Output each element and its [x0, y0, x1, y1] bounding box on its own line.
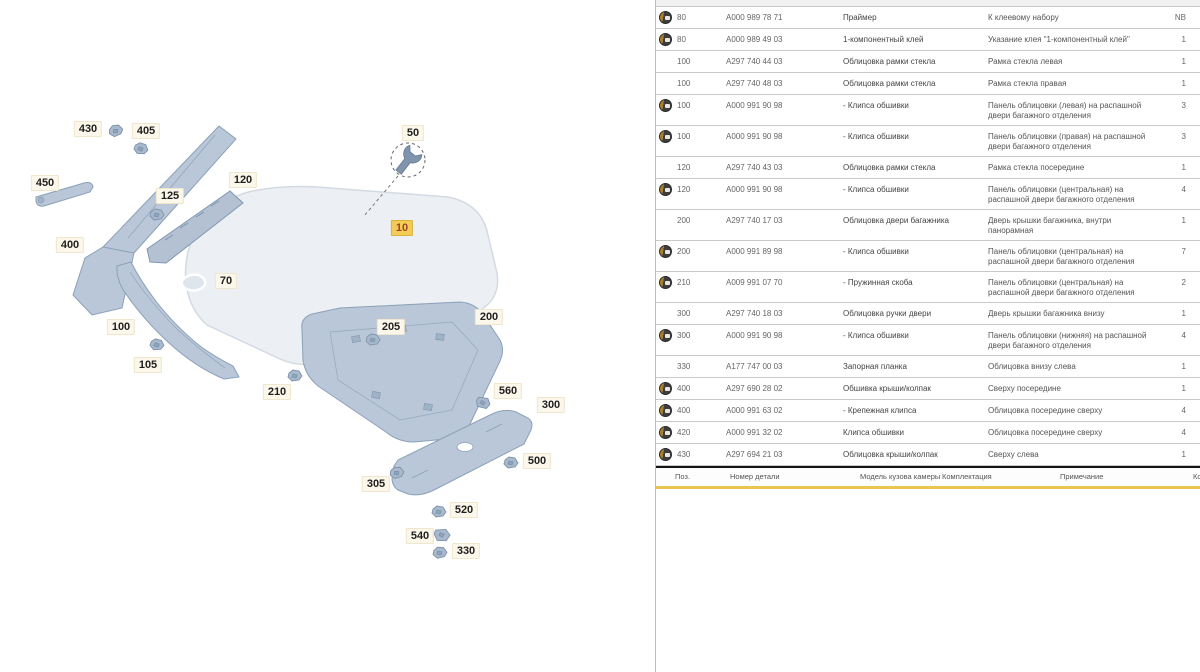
- row-quantity: 4: [1158, 404, 1192, 416]
- table-row[interactable]: 210 A009 991 07 70 - Пружинная скоба Пан…: [656, 272, 1200, 303]
- row-description: Клипса обшивки: [843, 426, 988, 438]
- part-photo-badge-icon[interactable]: [659, 276, 672, 289]
- table-row[interactable]: 200 A000 991 89 98 - Клипса обшивки Пане…: [656, 241, 1200, 272]
- row-position: 300: [677, 307, 726, 319]
- table-row[interactable]: 400 A000 991 63 02 - Крепежная клипса Об…: [656, 400, 1200, 422]
- row-position: 80: [677, 11, 726, 23]
- row-position: 300: [677, 329, 726, 341]
- row-note: Рамка стекла правая: [988, 77, 1158, 89]
- row-description: Обшивка крыши/колпак: [843, 382, 988, 394]
- parts-diagram-panel: 4304054501251204007010010550102052002105…: [0, 0, 655, 672]
- row-note: Облицовка посередине сверху: [988, 404, 1158, 416]
- row-part-number: A000 991 90 98: [726, 130, 843, 142]
- row-position: 100: [677, 55, 726, 67]
- row-note: К клеевому набору: [988, 11, 1158, 23]
- row-quantity: 3: [1158, 99, 1192, 111]
- row-note: Облицовка внизу слева: [988, 360, 1158, 372]
- part-callout-305[interactable]: 305: [362, 476, 390, 492]
- part-callout-540[interactable]: 540: [406, 528, 434, 544]
- table-column-header-row: Поз.Номер деталиМодель кузова камерыКомп…: [656, 466, 1200, 486]
- row-quantity: 1: [1158, 360, 1192, 372]
- part-photo-badge-icon[interactable]: [659, 11, 672, 24]
- table-row[interactable]: 80 A000 989 78 71 Праймер К клеевому наб…: [656, 7, 1200, 29]
- table-row[interactable]: 430 A297 694 21 03 Облицовка крыши/колпа…: [656, 444, 1200, 466]
- part-photo-badge-icon[interactable]: [659, 426, 672, 439]
- row-description: - Клипса обшивки: [843, 245, 988, 257]
- row-description: Облицовка крыши/колпак: [843, 448, 988, 460]
- exploded-view-drawing: [0, 0, 655, 672]
- row-description: - Крепежная клипса: [843, 404, 988, 416]
- part-callout-330[interactable]: 330: [452, 543, 480, 559]
- row-description: Облицовка рамки стекла: [843, 77, 988, 89]
- row-part-number: A297 740 44 03: [726, 55, 843, 67]
- table-row[interactable]: 100 A000 991 90 98 - Клипса обшивки Пане…: [656, 95, 1200, 126]
- part-callout-450[interactable]: 450: [31, 175, 59, 191]
- part-callout-125[interactable]: 125: [156, 188, 184, 204]
- part-photo-badge-icon[interactable]: [659, 130, 672, 143]
- part-photo-badge-icon[interactable]: [659, 382, 672, 395]
- row-position: 100: [677, 130, 726, 142]
- row-part-number: A297 740 18 03: [726, 307, 843, 319]
- header-accent-bar: [656, 486, 1200, 489]
- row-part-number: A000 989 49 03: [726, 33, 843, 45]
- row-quantity: 1: [1158, 382, 1192, 394]
- row-note: Рамка стекла левая: [988, 55, 1158, 67]
- row-note: Сверху слева: [988, 448, 1158, 460]
- part-callout-100[interactable]: 100: [107, 319, 135, 335]
- part-grommet-70: [182, 275, 205, 291]
- row-quantity: 4: [1158, 426, 1192, 438]
- row-quantity: 2: [1158, 276, 1192, 288]
- part-callout-200[interactable]: 200: [475, 309, 503, 325]
- row-note: Дверь крышки багажника, внутри панорамна…: [988, 214, 1158, 236]
- row-position: 200: [677, 214, 726, 226]
- row-quantity: 1: [1158, 33, 1192, 45]
- table-row[interactable]: 200 A297 740 17 03 Облицовка двери багаж…: [656, 210, 1200, 241]
- row-note: Панель облицовки (центральная) на распаш…: [988, 276, 1158, 298]
- column-header: Поз.: [675, 472, 690, 481]
- row-position: 80: [677, 33, 726, 45]
- row-position: 100: [677, 77, 726, 89]
- row-part-number: A297 690 28 02: [726, 382, 843, 394]
- row-description: - Клипса обшивки: [843, 130, 988, 142]
- table-row[interactable]: 400 A297 690 28 02 Обшивка крыши/колпак …: [656, 378, 1200, 400]
- part-callout-430[interactable]: 430: [74, 121, 102, 137]
- row-part-number: A000 991 90 98: [726, 183, 843, 195]
- row-position: 400: [677, 382, 726, 394]
- row-part-number: A177 747 00 03: [726, 360, 843, 372]
- row-description: 1-компонентный клей: [843, 33, 988, 45]
- table-row[interactable]: 80 A000 989 49 03 1-компонентный клей Ук…: [656, 29, 1200, 51]
- row-position: 200: [677, 245, 726, 257]
- row-part-number: A000 991 89 98: [726, 245, 843, 257]
- row-description: Облицовка ручки двери: [843, 307, 988, 319]
- row-part-number: A297 740 43 03: [726, 161, 843, 173]
- row-description: Праймер: [843, 11, 988, 23]
- row-description: - Клипса обшивки: [843, 183, 988, 195]
- column-header: Модель кузова камеры: [860, 472, 940, 481]
- row-quantity: 1: [1158, 307, 1192, 319]
- row-part-number: A000 991 90 98: [726, 329, 843, 341]
- part-callout-205[interactable]: 205: [377, 319, 405, 335]
- row-quantity: 1: [1158, 77, 1192, 89]
- row-description: - Клипса обшивки: [843, 329, 988, 341]
- part-callout-405[interactable]: 405: [132, 123, 160, 139]
- part-callout-105[interactable]: 105: [134, 357, 162, 373]
- table-row[interactable]: 100 A297 740 48 03 Облицовка рамки стекл…: [656, 73, 1200, 95]
- row-note: Панель облицовки (центральная) на распаш…: [988, 245, 1158, 267]
- part-photo-badge-icon[interactable]: [659, 448, 672, 461]
- table-row[interactable]: 120 A297 740 43 03 Облицовка рамки стекл…: [656, 157, 1200, 179]
- table-row[interactable]: 300 A297 740 18 03 Облицовка ручки двери…: [656, 303, 1200, 325]
- part-photo-badge-icon[interactable]: [659, 183, 672, 196]
- row-quantity: NB: [1158, 11, 1192, 23]
- table-row[interactable]: 420 A000 991 32 02 Клипса обшивки Облицо…: [656, 422, 1200, 444]
- row-quantity: 3: [1158, 130, 1192, 142]
- table-row[interactable]: 100 A297 740 44 03 Облицовка рамки стекл…: [656, 51, 1200, 73]
- row-part-number: A009 991 07 70: [726, 276, 843, 288]
- table-row[interactable]: 120 A000 991 90 98 - Клипса обшивки Пане…: [656, 179, 1200, 210]
- row-note: Рамка стекла посередине: [988, 161, 1158, 173]
- row-note: Панель облицовки (нижняя) на распашной д…: [988, 329, 1158, 351]
- parts-rows: 80 A000 989 78 71 Праймер К клеевому наб…: [656, 7, 1200, 466]
- part-photo-badge-icon[interactable]: [659, 329, 672, 342]
- part-callout-400[interactable]: 400: [56, 237, 84, 253]
- row-note: Сверху посередине: [988, 382, 1158, 394]
- row-position: 210: [677, 276, 726, 288]
- part-callout-520[interactable]: 520: [450, 502, 478, 518]
- parts-catalog-window: 4304054501251204007010010550102052002105…: [0, 0, 1200, 672]
- table-row[interactable]: 330 A177 747 00 03 Запорная планка Облиц…: [656, 356, 1200, 378]
- table-row[interactable]: 300 A000 991 90 98 - Клипса обшивки Пане…: [656, 325, 1200, 356]
- row-part-number: A000 991 32 02: [726, 426, 843, 438]
- part-callout-10[interactable]: 10: [391, 220, 413, 236]
- part-photo-badge-icon[interactable]: [659, 245, 672, 258]
- row-quantity: 4: [1158, 329, 1192, 341]
- part-photo-badge-icon[interactable]: [659, 33, 672, 46]
- row-note: Панель облицовки (центральная) на распаш…: [988, 183, 1158, 205]
- row-position: 430: [677, 448, 726, 460]
- part-callout-70[interactable]: 70: [215, 273, 237, 289]
- row-description: Облицовка двери багажника: [843, 214, 988, 226]
- row-quantity: 1: [1158, 448, 1192, 460]
- row-description: Облицовка рамки стекла: [843, 161, 988, 173]
- row-part-number: A297 740 48 03: [726, 77, 843, 89]
- row-quantity: 7: [1158, 245, 1192, 257]
- row-note: Указание клея "1-компонентный клей": [988, 33, 1158, 45]
- row-note: Облицовка посередине сверху: [988, 426, 1158, 438]
- row-part-number: A000 991 63 02: [726, 404, 843, 416]
- row-position: 400: [677, 404, 726, 416]
- clipped-previous-row: [656, 0, 1200, 7]
- row-part-number: A000 989 78 71: [726, 11, 843, 23]
- row-position: 120: [677, 161, 726, 173]
- row-description: Облицовка рамки стекла: [843, 55, 988, 67]
- part-callout-120[interactable]: 120: [229, 172, 257, 188]
- row-part-number: A297 694 21 03: [726, 448, 843, 460]
- parts-table-panel: 80 A000 989 78 71 Праймер К клеевому наб…: [656, 0, 1200, 672]
- row-part-number: A000 991 90 98: [726, 99, 843, 111]
- row-quantity: 1: [1158, 55, 1192, 67]
- part-callout-500[interactable]: 500: [523, 453, 551, 469]
- row-position: 100: [677, 99, 726, 111]
- part-callout-300[interactable]: 300: [537, 397, 565, 413]
- table-row[interactable]: 100 A000 991 90 98 - Клипса обшивки Пане…: [656, 126, 1200, 157]
- row-description: - Клипса обшивки: [843, 99, 988, 111]
- part-callout-50[interactable]: 50: [402, 125, 424, 141]
- part-photo-badge-icon[interactable]: [659, 404, 672, 417]
- row-note: Дверь крышки багажника внизу: [988, 307, 1158, 319]
- row-position: 420: [677, 426, 726, 438]
- row-position: 120: [677, 183, 726, 195]
- column-header: Номер детали: [730, 472, 780, 481]
- row-position: 330: [677, 360, 726, 372]
- row-quantity: 1: [1158, 161, 1192, 173]
- row-part-number: A297 740 17 03: [726, 214, 843, 226]
- row-note: Панель облицовки (правая) на распашной д…: [988, 130, 1158, 152]
- column-header: Комплектация: [942, 472, 992, 481]
- row-quantity: 4: [1158, 183, 1192, 195]
- part-callout-210[interactable]: 210: [263, 384, 291, 400]
- column-header: Примечание: [1060, 472, 1103, 481]
- part-callout-560[interactable]: 560: [494, 383, 522, 399]
- part-photo-badge-icon[interactable]: [659, 99, 672, 112]
- row-quantity: 1: [1158, 214, 1192, 226]
- row-description: - Пружинная скоба: [843, 276, 988, 288]
- row-note: Панель облицовки (левая) на распашной дв…: [988, 99, 1158, 121]
- column-header: Количество: [1193, 472, 1200, 481]
- row-description: Запорная планка: [843, 360, 988, 372]
